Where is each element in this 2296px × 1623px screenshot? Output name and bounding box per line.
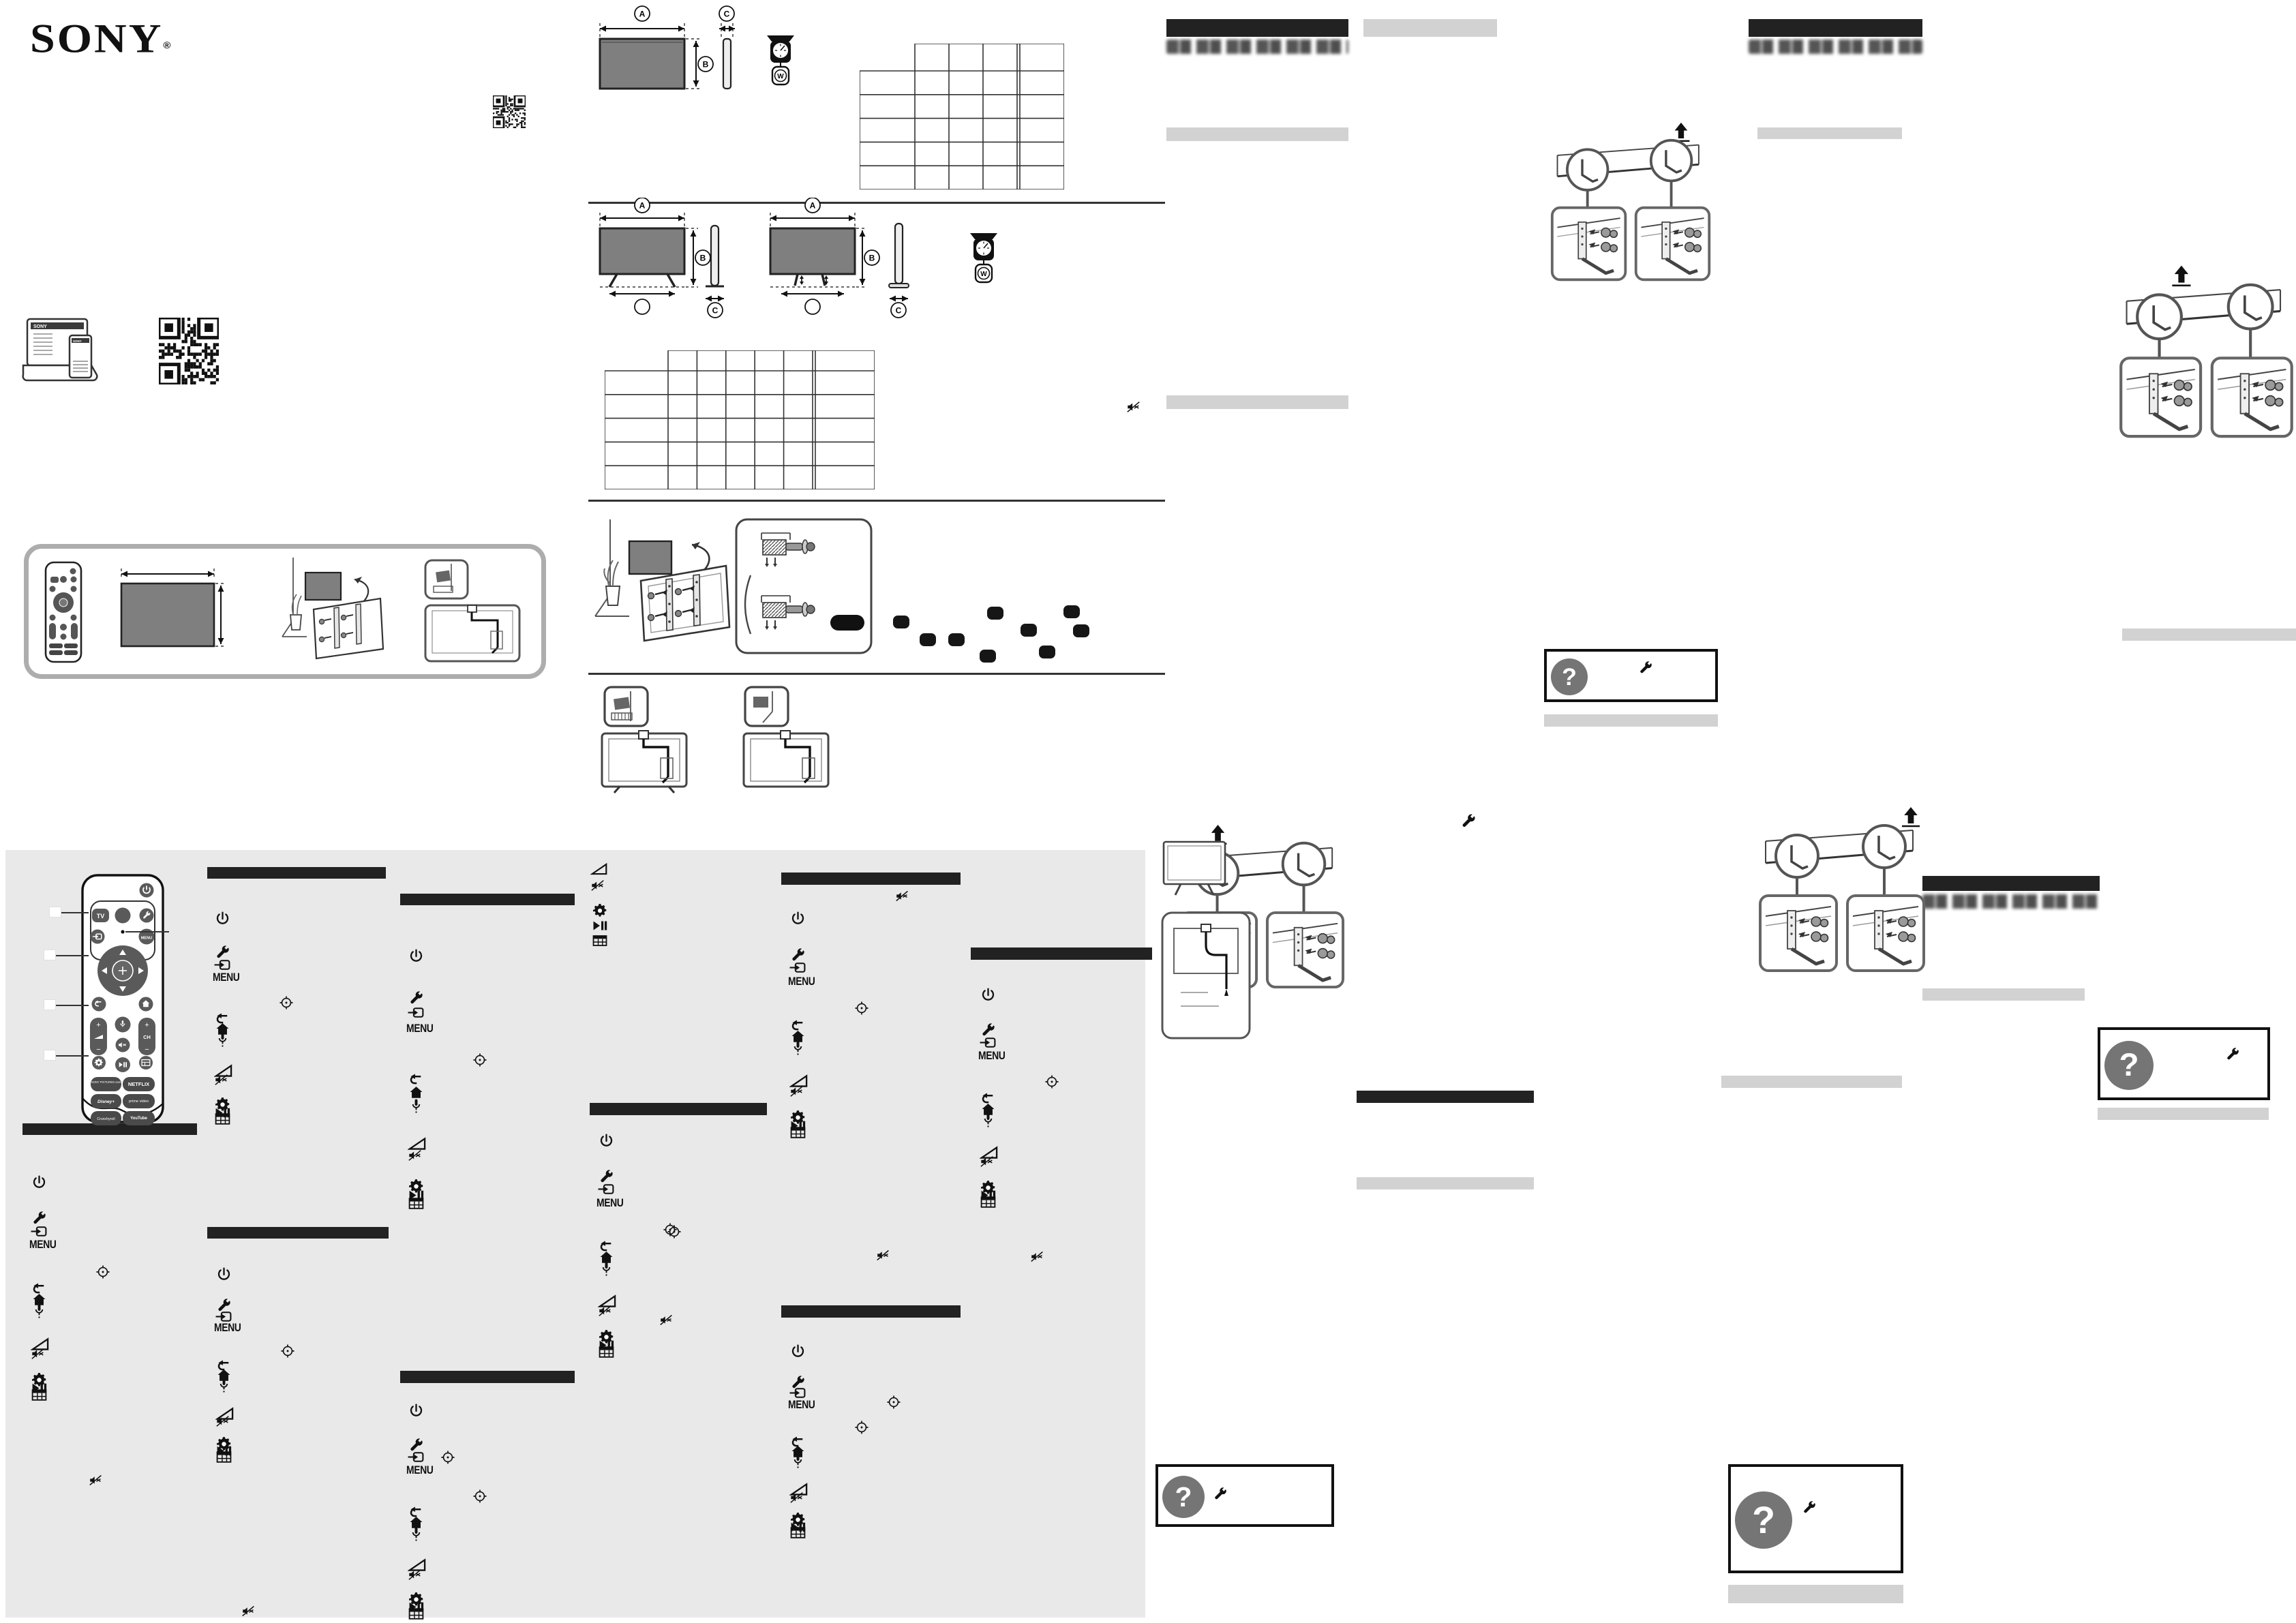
menu-text: MENU <box>788 1398 815 1411</box>
menu-text: MENU <box>406 1463 433 1476</box>
svg-text:NETFLIX: NETFLIX <box>128 1081 149 1087</box>
mic-icon <box>789 1453 806 1470</box>
remote-mic-button <box>115 1017 131 1033</box>
mic-icon <box>408 1526 425 1543</box>
mic-icon <box>214 1031 231 1048</box>
remote-callout-line <box>56 955 89 956</box>
help-box: ? <box>1544 649 1718 702</box>
svg-text:CH: CH <box>143 1034 151 1040</box>
help-box: ? <box>2098 1027 2270 1100</box>
wrench-icon <box>1801 1500 1817 1516</box>
mic-icon <box>215 1377 232 1394</box>
mute-icon <box>1126 399 1141 414</box>
mic-icon <box>598 1260 615 1277</box>
guide-icon <box>598 1344 615 1361</box>
power-icon <box>408 948 425 965</box>
power-icon <box>31 1174 48 1192</box>
install-options-diagrams <box>590 682 835 794</box>
help-box: ? <box>1155 1464 1334 1527</box>
svg-text:−: − <box>96 1046 100 1054</box>
subsection-bar <box>1721 1076 1902 1088</box>
svg-text:Crunchyroll: Crunchyroll <box>97 1117 115 1121</box>
svg-text:prime video: prime video <box>129 1099 149 1104</box>
section-heading-bar <box>971 947 1152 960</box>
menu-button-label: MENU <box>788 1398 827 1412</box>
tv-front-small-illustration <box>1160 838 1228 901</box>
subsection-bar <box>1728 1585 1903 1603</box>
mute-icon <box>876 1248 890 1262</box>
select-icon <box>1044 1074 1059 1089</box>
stand-assembly-diagram-2 <box>1549 121 1714 285</box>
remote-callout-marker <box>44 950 56 960</box>
mic-icon <box>789 1040 806 1057</box>
support-site-illustration: SONY SONY <box>20 316 102 386</box>
subsection-bar <box>1357 1177 1534 1189</box>
mute-icon <box>89 1473 103 1487</box>
mute-icon <box>598 1303 613 1318</box>
section-heading-bar <box>1922 876 2100 891</box>
stand-assembly-diagram-3 <box>1757 805 1928 977</box>
power-icon <box>408 1403 425 1420</box>
select-icon <box>854 1001 869 1016</box>
section-heading-bar <box>400 1371 575 1383</box>
menu-button-label: MENU <box>406 1463 445 1477</box>
svg-text:MENU: MENU <box>141 937 152 941</box>
input-icon <box>408 1004 425 1021</box>
section-heading-bar <box>400 894 575 905</box>
select-icon <box>472 1489 487 1504</box>
mute-icon <box>590 878 605 893</box>
remote-play-pause-button <box>115 1057 130 1072</box>
mute-icon <box>241 1604 256 1618</box>
volume-icon <box>590 860 608 878</box>
playpause-icon <box>592 917 608 934</box>
screw-cap-dot <box>980 650 996 663</box>
cable-routing-box-illustration <box>1160 911 1252 1040</box>
dim-depth-label: C <box>712 306 719 316</box>
remote-callout-marker <box>49 907 61 917</box>
select-icon <box>663 1222 678 1237</box>
guide-icon <box>215 1448 232 1466</box>
section-heading-bar <box>590 1103 767 1115</box>
svg-text:Disney+: Disney+ <box>97 1099 115 1104</box>
question-mark-icon: ? <box>2104 1041 2154 1090</box>
qr-top <box>493 95 526 128</box>
wall-mount-diagram <box>590 513 876 661</box>
dim-width-label: A <box>639 201 646 211</box>
dim-height-label: B <box>700 254 706 263</box>
power-icon <box>598 1133 615 1150</box>
select-icon <box>854 1420 869 1435</box>
wrench-icon <box>2224 1046 2241 1063</box>
help-box: ? <box>1728 1464 1903 1573</box>
section-heading-bar <box>1166 19 1348 37</box>
select-icon <box>280 1344 295 1359</box>
menu-text: MENU <box>406 1022 433 1035</box>
remote-callout-line <box>56 1005 89 1006</box>
mute-icon <box>215 1414 230 1429</box>
select-icon <box>95 1264 110 1279</box>
remote-small-illustration <box>44 560 83 664</box>
section-heading-bar <box>1357 1091 1534 1103</box>
question-mark-icon: ? <box>1162 1476 1205 1518</box>
dim-depth-label: C <box>724 10 730 19</box>
guide-icon <box>980 1194 997 1211</box>
screw-cap-dot <box>948 633 965 646</box>
remote-callout-line <box>61 912 89 913</box>
question-mark-icon: ? <box>1735 1491 1792 1549</box>
section-heading-bar <box>781 873 961 885</box>
subsection-bar <box>1166 127 1348 141</box>
section-divider-rule <box>588 673 1165 675</box>
menu-text: MENU <box>788 975 815 988</box>
remote-guide-panel <box>5 850 1145 1618</box>
mute-icon <box>789 1490 804 1505</box>
menu-button-label: MENU <box>596 1196 635 1210</box>
svg-text:SONY PICTURES core: SONY PICTURES core <box>91 1080 121 1084</box>
remote-callout-marker <box>44 1050 56 1061</box>
screw-cap-dot <box>1063 605 1080 618</box>
subsection-bar <box>2122 628 2296 641</box>
mute-icon <box>895 889 909 903</box>
svg-text:−: − <box>145 1046 149 1054</box>
menu-button-label: MENU <box>406 1022 445 1035</box>
dim-depth-label: C <box>896 306 902 316</box>
question-mark-text: ? <box>1752 1498 1775 1542</box>
dimensions-table-1 <box>860 44 1064 189</box>
guide-icon <box>408 1195 425 1212</box>
svg-text:SONY: SONY <box>73 339 82 343</box>
blurred-heading-text <box>1166 40 1348 54</box>
registered-mark: ® <box>163 40 172 51</box>
power-icon <box>215 1266 232 1284</box>
subsection-bar <box>1544 714 1718 727</box>
menu-text: MENU <box>213 971 239 984</box>
svg-text:TV: TV <box>97 913 105 920</box>
question-mark-text: ? <box>2119 1046 2139 1084</box>
blurred-heading-text <box>1749 40 1922 54</box>
section-heading-bar <box>207 1227 389 1239</box>
dim-weight-label: W <box>980 271 987 278</box>
mute-icon <box>214 1072 229 1087</box>
blurred-heading-text <box>1922 894 2100 909</box>
power-icon <box>980 987 997 1004</box>
select-icon <box>279 995 294 1010</box>
menu-button-label: MENU <box>29 1238 68 1252</box>
guide-icon <box>789 1124 806 1141</box>
qr-support-site <box>159 318 219 384</box>
wrench-icon <box>1212 1486 1228 1502</box>
remote-power-button <box>140 883 154 898</box>
input-icon <box>789 959 806 976</box>
svg-text:SONY: SONY <box>33 324 47 329</box>
question-mark-text: ? <box>1175 1481 1192 1513</box>
mute-icon <box>408 1567 423 1582</box>
select-icon <box>440 1450 455 1465</box>
subsection-bar <box>2098 1108 2269 1120</box>
wrench-icon <box>1637 660 1654 676</box>
menu-text: MENU <box>596 1196 623 1209</box>
stand-assembly-diagram-4 <box>2118 262 2296 444</box>
svg-text:+: + <box>96 1021 100 1029</box>
wrench-icon <box>1460 813 1477 830</box>
dim-weight-label: W <box>777 73 784 80</box>
mute-icon <box>789 1084 804 1099</box>
guide-icon <box>214 1110 231 1127</box>
remote-callout-line <box>56 1055 89 1057</box>
input-icon <box>598 1181 615 1198</box>
sony-logo: SONY® <box>30 15 172 63</box>
mute-icon <box>1030 1249 1044 1264</box>
dimensions-table-2 <box>605 350 875 489</box>
question-mark-icon: ? <box>1551 658 1588 695</box>
screw-cap-dot <box>987 607 1003 620</box>
mic-icon <box>408 1097 425 1114</box>
input-icon <box>31 1223 48 1240</box>
mic-icon <box>980 1112 997 1129</box>
menu-text: MENU <box>214 1321 241 1334</box>
remote-callout-marker <box>44 999 56 1010</box>
select-icon <box>472 1052 487 1067</box>
mute-icon <box>659 1313 674 1327</box>
subsection-bar <box>1922 988 2085 1001</box>
guide-icon <box>592 932 608 949</box>
guide-icon <box>789 1524 806 1541</box>
menu-button-label: MENU <box>214 1321 253 1335</box>
remote-service-buttons: SONY PICTURES core NETFLIX Disney+ prime… <box>91 1077 155 1125</box>
subsection-bar <box>1363 19 1497 37</box>
section-heading-bar <box>1749 19 1922 37</box>
section-heading-bar <box>207 867 386 879</box>
remote-control-diagram: TV MENU + − + CH − SONY PICTURES core NE… <box>80 873 165 1129</box>
screw-cap-dot <box>1039 646 1055 658</box>
screw-cap-dot <box>1073 624 1089 637</box>
remote-mute-button <box>116 1038 130 1052</box>
wall-mount-small-illustration <box>278 553 391 671</box>
select-icon <box>886 1395 901 1410</box>
power-icon <box>789 1344 806 1361</box>
tv-size-illustration <box>117 566 228 654</box>
dim-width-label: A <box>639 10 646 19</box>
section-divider-rule <box>588 500 1165 502</box>
mute-icon <box>31 1346 46 1361</box>
corner-placement-small-box <box>424 559 469 600</box>
mute-icon <box>980 1154 995 1169</box>
remote-guide-button <box>139 1056 153 1070</box>
dim-height-label: B <box>869 254 875 263</box>
screw-cap-dot <box>920 633 936 646</box>
tv-dimensions-diagram-1: A B C W <box>590 0 815 109</box>
reference-guide-page: SONY® ????MENUMENUMENUMENUMENUMENUMENUME… <box>0 0 2296 1623</box>
menu-button-label: MENU <box>213 971 252 984</box>
menu-button-label: MENU <box>788 975 827 988</box>
screw-cap-dot <box>893 616 909 628</box>
mute-icon <box>408 1148 423 1163</box>
cable-routing-small-box <box>424 604 521 663</box>
remote-mic-callout-line <box>125 931 169 932</box>
dim-height-label: B <box>703 60 709 70</box>
screw-cap-dot <box>1021 624 1037 637</box>
dim-width-label: A <box>810 201 816 211</box>
remote-mic-hole <box>121 930 124 933</box>
power-icon <box>214 911 231 928</box>
settings-icon <box>592 902 608 919</box>
subsection-bar <box>1757 127 1902 139</box>
menu-text: MENU <box>29 1238 56 1251</box>
remote-back-button <box>92 997 106 1012</box>
sony-logo-text: SONY <box>30 16 163 61</box>
svg-text:YouTube: YouTube <box>130 1117 147 1121</box>
guide-icon <box>408 1605 425 1622</box>
mic-icon <box>31 1303 48 1320</box>
section-heading-bar <box>781 1305 961 1318</box>
tv-dimensions-diagram-2: A B C A B C W <box>590 198 1012 319</box>
power-icon <box>789 911 806 928</box>
menu-text: MENU <box>978 1049 1005 1062</box>
guide-icon <box>31 1386 48 1404</box>
question-mark-text: ? <box>1562 663 1577 691</box>
svg-text:+: + <box>145 1021 149 1029</box>
menu-button-label: MENU <box>978 1049 1017 1063</box>
subsection-bar <box>1166 395 1348 409</box>
